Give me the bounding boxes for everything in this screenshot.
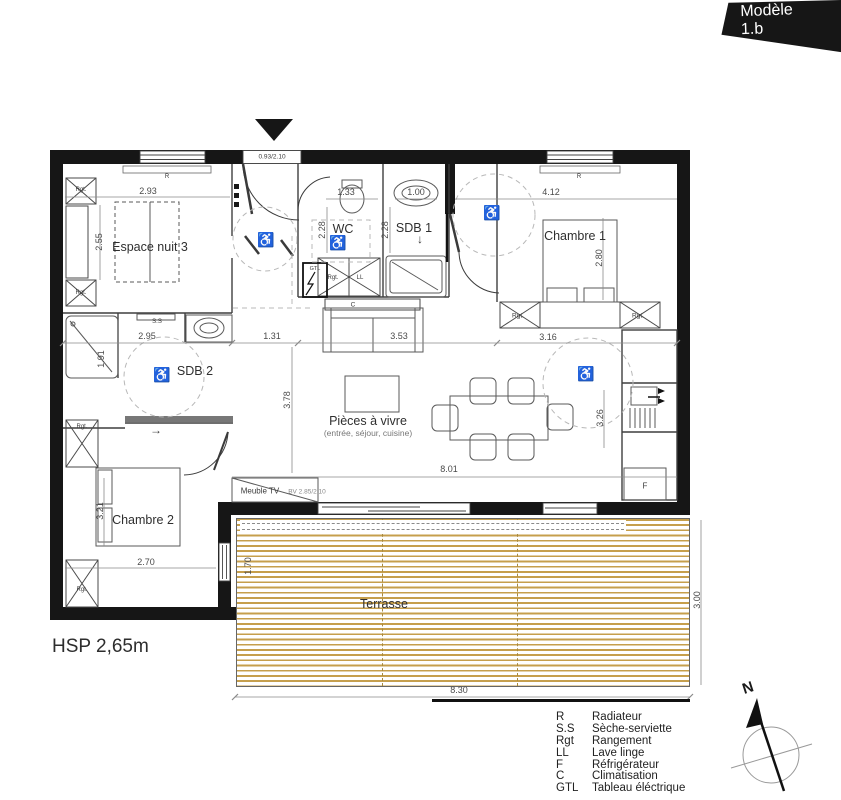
legend-row: LL Lave linge — [556, 747, 685, 759]
dim-255: 2.55 — [94, 233, 104, 251]
wheelchair-icon: ♿ — [153, 367, 170, 384]
dim-378: 3.78 — [282, 391, 292, 409]
dim-270: 2.70 — [137, 557, 155, 567]
rangement-mark-wc: Rgt. — [327, 275, 338, 281]
legend-row: R Radiateur — [556, 711, 685, 723]
dim-300: 3.00 — [692, 591, 702, 609]
legend-row: GTL Tableau éléctrique — [556, 782, 685, 794]
legend-abbr: F — [556, 759, 592, 771]
kitchen-sink — [631, 387, 657, 405]
bay-window-label: BV 2.85/2.10 — [288, 489, 326, 496]
radiator-mark-espace-nuit: R — [165, 174, 169, 180]
deck-joint-line — [517, 519, 518, 686]
dim-228-sdb1: 2.28 — [380, 221, 390, 239]
wc-door-swing — [298, 177, 330, 210]
legend-row: C Climatisation — [556, 770, 685, 782]
sliding-arrow-icon: → — [150, 423, 162, 437]
room-label-espace-nuit: Espace nuit 3 — [112, 240, 188, 254]
rangement-mark-c1-right: Rgt. — [632, 313, 644, 320]
radiators — [123, 166, 620, 173]
threshold-dash — [242, 529, 624, 530]
legend-abbr: S.S — [556, 723, 592, 735]
wheelchair-icon: ♿ — [577, 366, 594, 383]
model-label: Modèle 1.b — [740, 1, 808, 39]
room-label-sdb2: SDB 2 — [177, 364, 213, 378]
legend-label: Lave linge — [592, 747, 644, 759]
dim-321: 3.21 — [95, 502, 105, 520]
coffee-table — [345, 376, 399, 412]
rangement-mark-en-top: Rgt. — [75, 187, 86, 193]
dim-295: 2.95 — [138, 331, 156, 341]
dim-412: 4.12 — [542, 187, 560, 197]
accessibility-clearances — [124, 174, 633, 428]
north-arrow — [731, 698, 812, 791]
dining-table — [450, 396, 548, 440]
legend-abbr: C — [556, 770, 592, 782]
entry-marker-triangle — [255, 119, 293, 141]
floor-plan-sheet: Modèle 1.b 2.93 1.33 1.00 4.12 2.55 2.28… — [0, 0, 841, 800]
legend-label: Tableau éléctrique — [592, 782, 685, 794]
room-label-sdb1: SDB 1 — [396, 221, 432, 235]
legend-label: Rangement — [592, 735, 651, 747]
dim-830: 8.30 — [450, 685, 468, 695]
dim-191: 1.91 — [96, 350, 106, 368]
dim-100: 1.00 — [407, 187, 425, 197]
bay-threshold-strip — [240, 520, 626, 534]
lightning-icon — [306, 272, 315, 295]
legend-divider — [432, 699, 690, 702]
wheelchair-icon: ♿ — [483, 205, 500, 222]
wheelchair-icon: ♿ — [257, 232, 274, 249]
legend-abbr: GTL — [556, 782, 592, 794]
legend-label: Réfrigérateur — [592, 759, 659, 771]
dim-280: 2.80 — [594, 249, 604, 267]
bed-chambre2 — [96, 468, 180, 546]
drain-arrow-icon: ↓ — [417, 232, 423, 246]
rangement-mark-c2-top: Rgt. — [76, 424, 87, 430]
rangement-mark-c2-bottom: Rgt. — [76, 587, 87, 593]
legend-label: Sèche-serviette — [592, 723, 672, 735]
legend: R Radiateur S.S Sèche-serviette Rgt Rang… — [556, 711, 685, 794]
room-label-living: Pièces à vivre — [329, 414, 407, 428]
dim-316: 3.16 — [539, 332, 557, 342]
wheelchair-icon: ♿ — [329, 235, 346, 252]
dim-133: 1.33 — [337, 187, 355, 197]
legend-row: S.S Sèche-serviette — [556, 723, 685, 735]
rangement-mark-en-bottom: Rgt. — [75, 290, 86, 296]
legend-row: Rgt Rangement — [556, 735, 685, 747]
sliding-door-sdb2 — [125, 416, 233, 422]
room-label-chambre2: Chambre 2 — [112, 513, 174, 527]
bay-window — [318, 503, 470, 514]
room-label-chambre1: Chambre 1 — [544, 229, 606, 243]
entry-door-size-label: 0.93/2.10 — [258, 154, 285, 161]
gtl-mark: GTL — [310, 266, 321, 272]
legend-row: F Réfrigérateur — [556, 759, 685, 771]
seche-serviette-mark: S.S — [152, 319, 162, 325]
lave-linge-mark: LL — [357, 275, 364, 281]
legend-label: Climatisation — [592, 770, 658, 782]
dim-131: 1.31 — [263, 331, 281, 341]
radiator-mark-chambre1: R — [577, 174, 581, 180]
dim-170: 1.70 — [243, 557, 253, 575]
legend-abbr: R — [556, 711, 592, 723]
threshold-dash — [242, 523, 624, 524]
rangement-mark-c1-left: Rgt. — [512, 313, 524, 320]
chambre1-door-swing — [459, 252, 499, 293]
dim-801: 8.01 — [440, 464, 458, 474]
dim-353: 3.53 — [390, 331, 408, 341]
terrace-decking — [236, 518, 690, 687]
fridge-mark: F — [643, 482, 648, 491]
legend-label: Radiateur — [592, 711, 642, 723]
clim-mark: C — [351, 302, 356, 309]
room-label-terrasse: Terrasse — [360, 597, 408, 611]
north-arrowhead — [746, 698, 763, 728]
chambre2-door-swing — [184, 432, 228, 475]
legend-abbr: Rgt — [556, 735, 592, 747]
doors — [125, 164, 499, 475]
dim-228-wc: 2.28 — [317, 221, 327, 239]
room-sublabel-living: (entrée, séjour, cuisine) — [324, 428, 412, 438]
ceiling-height-label: HSP 2,65m — [52, 636, 149, 658]
legend-abbr: LL — [556, 747, 592, 759]
dim-293: 2.93 — [139, 186, 157, 196]
dim-326: 3.26 — [595, 409, 605, 427]
tv-cabinet-label: Meuble TV — [241, 487, 280, 496]
